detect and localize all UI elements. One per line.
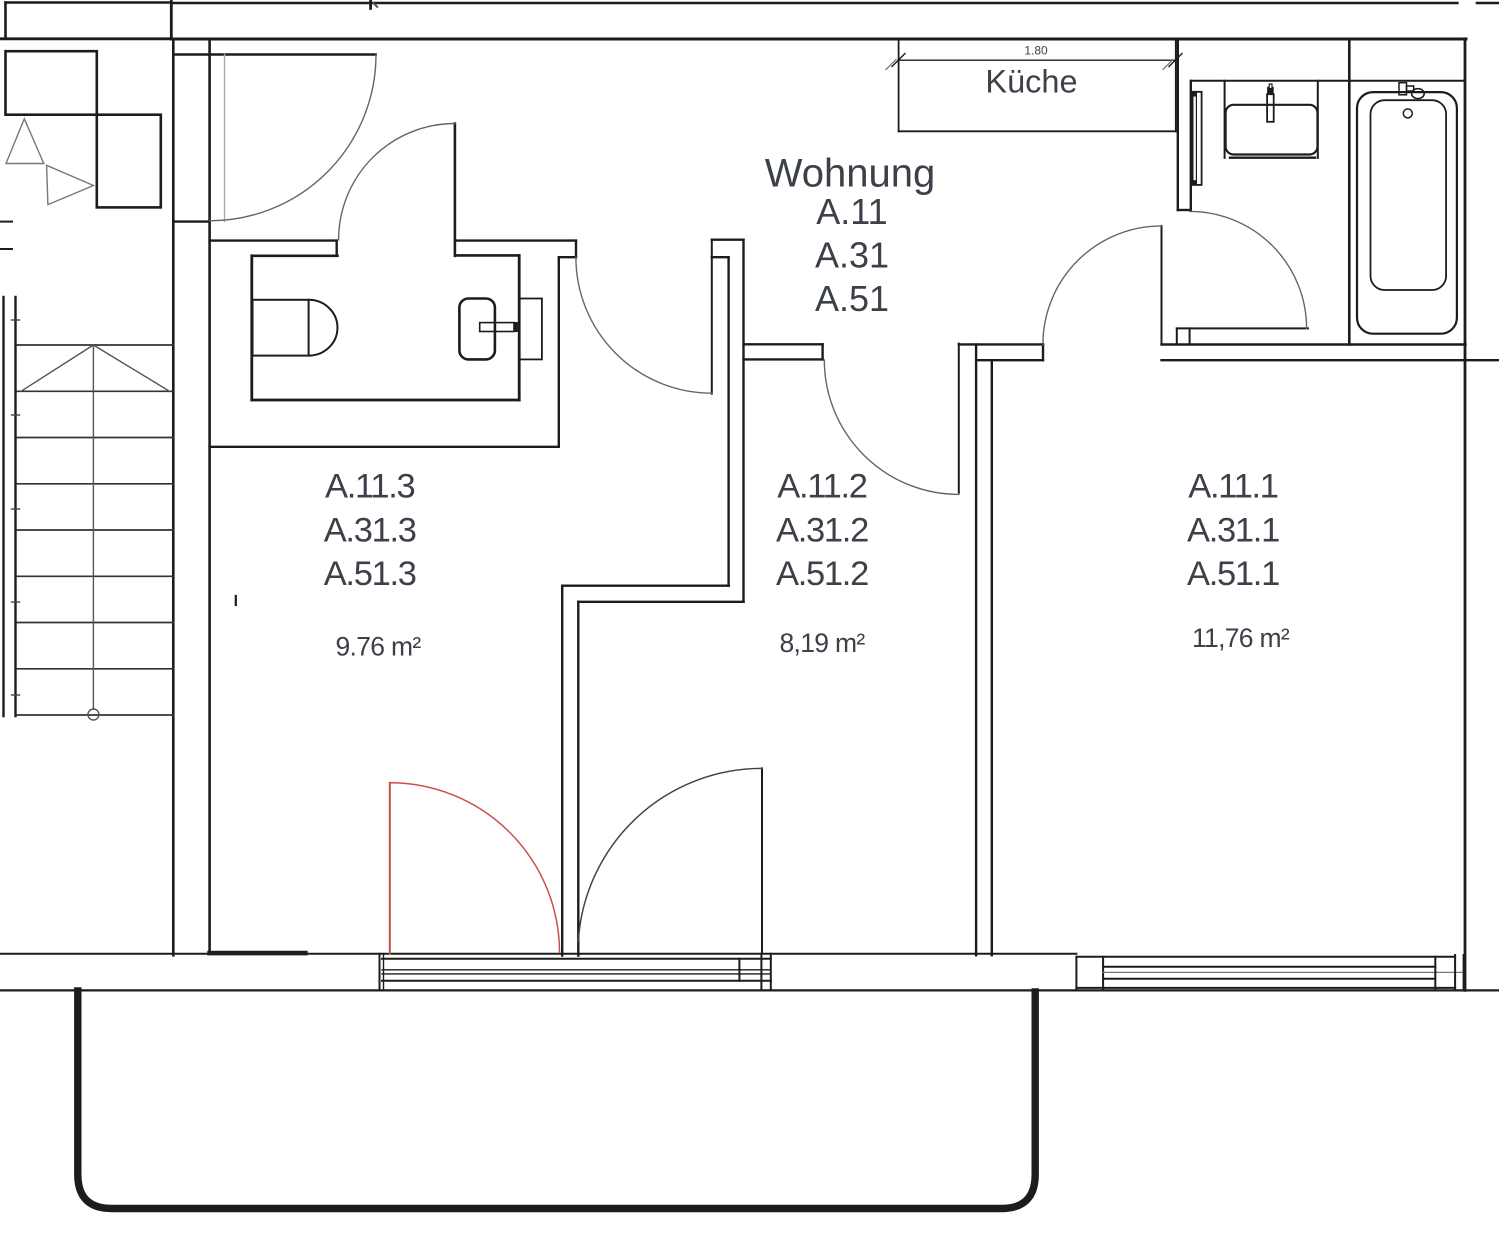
svg-text:A.51.3: A.51.3 (324, 555, 416, 593)
svg-text:A.11.1: A.11.1 (1188, 467, 1277, 505)
svg-text:9.76 m²: 9.76 m² (336, 632, 422, 662)
svg-text:Wohnung: Wohnung (765, 152, 936, 196)
svg-text:A.11.3: A.11.3 (325, 467, 414, 505)
svg-text:Küche: Küche (985, 64, 1077, 100)
svg-text:A.11: A.11 (816, 191, 887, 232)
svg-text:A.31: A.31 (815, 235, 889, 276)
svg-text:A.11.2: A.11.2 (777, 467, 866, 505)
svg-text:A.51.1: A.51.1 (1187, 555, 1279, 593)
svg-text:1.80: 1.80 (1024, 44, 1048, 58)
svg-text:A.51: A.51 (815, 278, 889, 319)
svg-text:A.31.3: A.31.3 (324, 512, 416, 550)
svg-text:11,76 m²: 11,76 m² (1192, 623, 1290, 653)
svg-text:8,19 m²: 8,19 m² (780, 628, 866, 658)
svg-text:A.51.2: A.51.2 (776, 555, 868, 593)
svg-text:A.31.2: A.31.2 (776, 512, 868, 550)
svg-text:A.31.1: A.31.1 (1187, 512, 1279, 550)
